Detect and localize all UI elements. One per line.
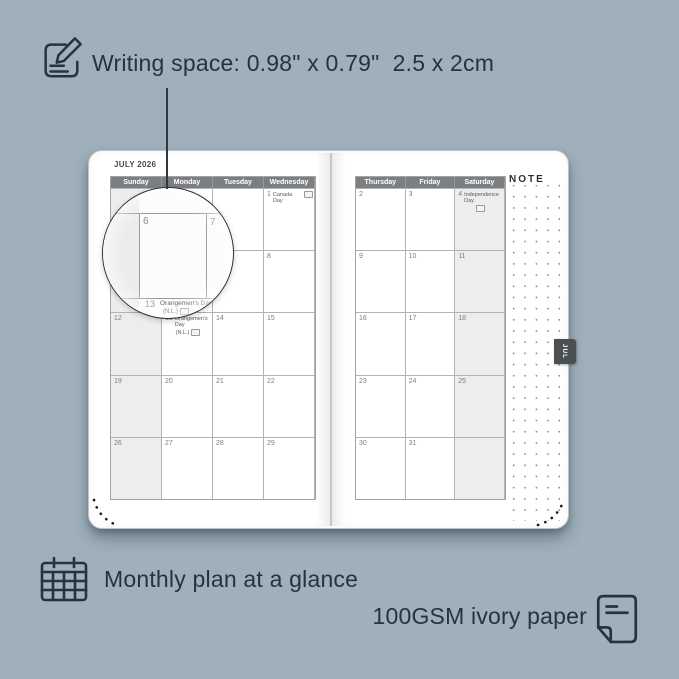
magnifier-circle: 6 7 13 Orangemen's Day (N.L.) xyxy=(102,187,234,319)
note-pencil-icon xyxy=(38,36,84,82)
paper-label: 100GSM ivory paper xyxy=(372,603,587,630)
monthly-plan-label: Monthly plan at a glance xyxy=(104,566,358,593)
month-tab: JUL xyxy=(554,339,576,364)
magnifier-glass-fade xyxy=(103,188,233,318)
calendar-grid-icon xyxy=(40,556,88,602)
writing-space-label: Writing space: 0.98" x 0.79" 2.5 x 2cm xyxy=(92,50,494,77)
month-tab-label: JUL xyxy=(562,344,569,359)
paper-sheet-icon xyxy=(596,594,638,644)
callout-connector-line xyxy=(166,88,168,189)
